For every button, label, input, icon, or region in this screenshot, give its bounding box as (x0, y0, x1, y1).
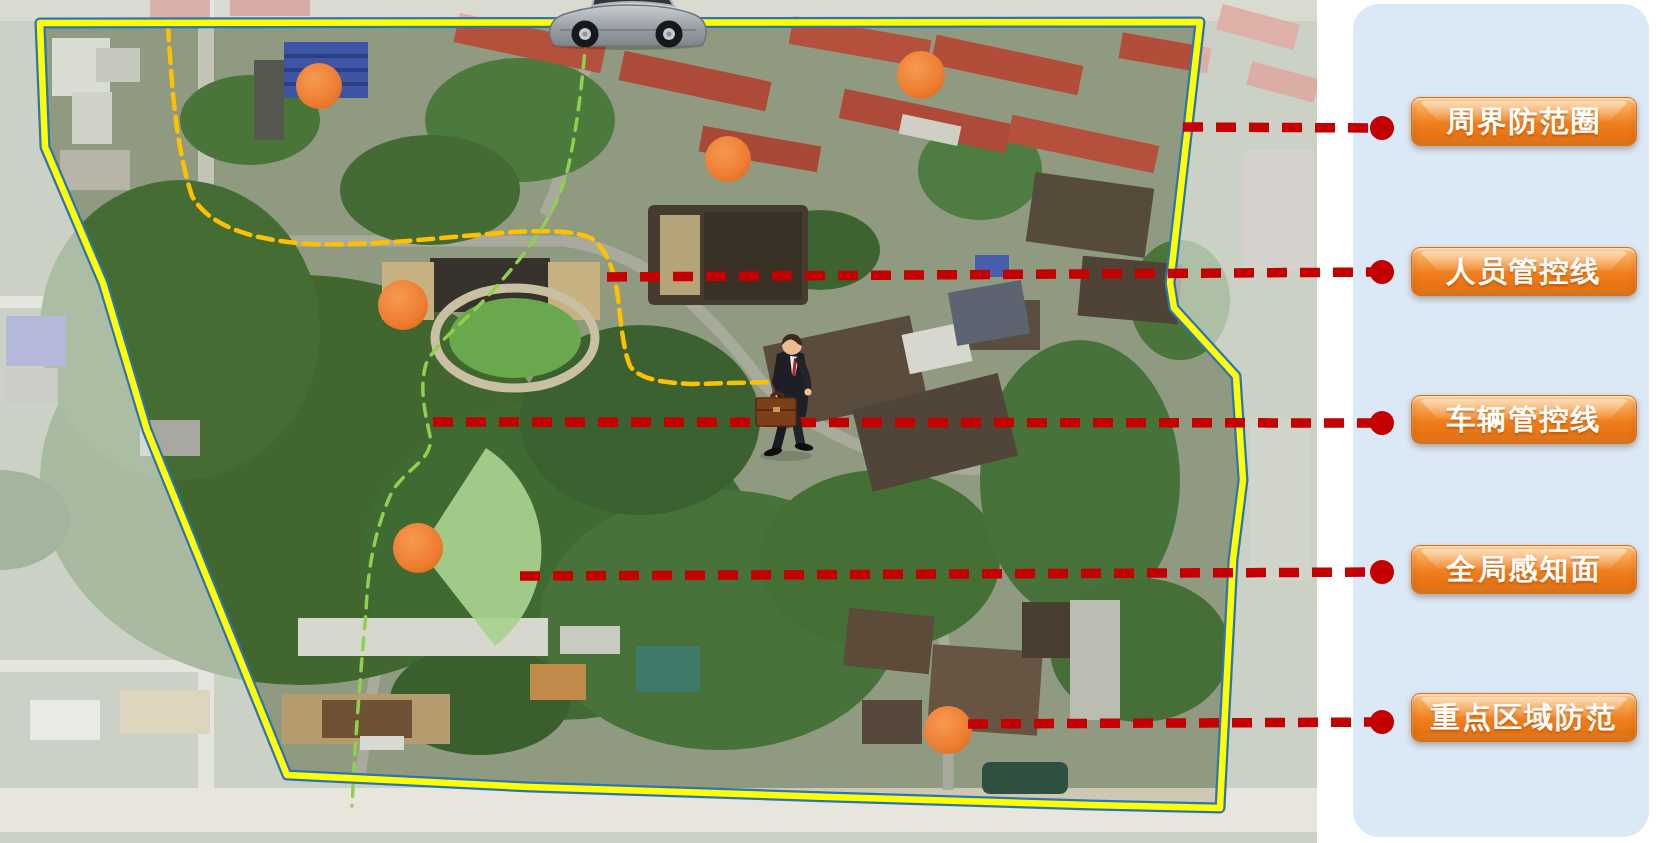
legend-button-label: 全局感知面 (1447, 550, 1602, 590)
legend-button-list: 周界防范圈人员管控线车辆管控线全局感知面重点区域防范 (0, 0, 1661, 843)
legend-button-label: 重点区域防范 (1431, 698, 1617, 738)
legend-button-global[interactable]: 全局感知面 (1411, 545, 1637, 594)
legend-button-label: 车辆管控线 (1447, 400, 1602, 440)
legend-button-personnel[interactable]: 人员管控线 (1411, 247, 1637, 296)
legend-button-perimeter[interactable]: 周界防范圈 (1411, 97, 1637, 146)
slide-canvas: 周界防范圈人员管控线车辆管控线全局感知面重点区域防范 (0, 0, 1661, 843)
legend-button-label: 周界防范圈 (1447, 102, 1602, 142)
legend-button-key-area[interactable]: 重点区域防范 (1411, 693, 1637, 742)
legend-button-vehicle[interactable]: 车辆管控线 (1411, 395, 1637, 444)
legend-button-label: 人员管控线 (1447, 252, 1602, 292)
